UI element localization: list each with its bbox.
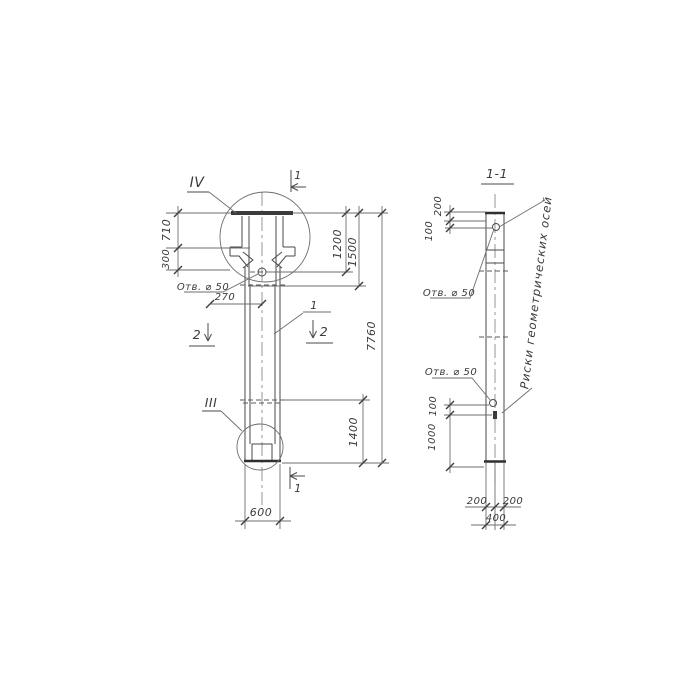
section-mark-2-right-arrow bbox=[310, 320, 317, 338]
position-number: 1 bbox=[310, 299, 318, 312]
section-mark-1-bottom: 1 bbox=[290, 467, 305, 495]
dim-1200: 1200 bbox=[331, 229, 344, 259]
dim-300: 300 bbox=[161, 249, 172, 270]
detail-circle-bottom bbox=[237, 424, 283, 470]
section-mark-1-bottom-text: 1 bbox=[294, 482, 302, 495]
dim-1000: 1000 bbox=[427, 423, 438, 450]
corbel-left-chevron bbox=[243, 252, 253, 268]
section-hole-label-top: Отв. ⌀ 50 bbox=[423, 288, 475, 299]
top-plate bbox=[231, 211, 293, 215]
hole-callout: Отв. ⌀ 50 270 bbox=[177, 274, 266, 308]
left-ext-lines bbox=[166, 248, 250, 270]
axes-note: Риски геометрических осей bbox=[499, 195, 555, 413]
section-hole-leader-bottom bbox=[432, 378, 491, 401]
section-mark-1-top-text: 1 bbox=[294, 169, 302, 182]
detail-label-bottom-text: III bbox=[205, 395, 218, 410]
section-mark-2-left: 2 bbox=[189, 323, 215, 346]
column-shaft-outline bbox=[245, 267, 280, 461]
corbel-right-chevron bbox=[272, 252, 282, 268]
section-mark-2-left-text: 2 bbox=[193, 327, 201, 342]
section-mark-1-top: 1 bbox=[291, 169, 306, 192]
axes-note-leader-bottom bbox=[502, 388, 532, 413]
detail-label-top-text: IV bbox=[190, 175, 206, 191]
detail-circle-top bbox=[220, 192, 310, 282]
section-title-text: 1-1 bbox=[486, 166, 508, 181]
section-top-dimensions: 200 100 bbox=[424, 196, 492, 242]
dim-1500: 1500 bbox=[346, 237, 359, 267]
drawing-canvas: IV III 1 1 2 2 bbox=[0, 0, 700, 700]
detail-label-top-leader bbox=[209, 192, 236, 213]
section-mark-2-right: 2 bbox=[306, 320, 333, 343]
shaft-seam-lower bbox=[240, 400, 285, 403]
main-view: IV III 1 1 2 2 bbox=[160, 169, 389, 529]
axes-note-text: Риски геометрических осей bbox=[517, 195, 555, 389]
bottom-dimension: 600 bbox=[235, 464, 291, 529]
dim-200-left: 200 bbox=[467, 496, 488, 507]
axis-mark bbox=[493, 411, 497, 419]
section-bottomleft-dimensions: 100 1000 bbox=[427, 396, 492, 473]
dim-7760: 7760 bbox=[365, 321, 378, 351]
left-dimensions: 710 300 bbox=[160, 206, 250, 277]
dim-200-top: 200 bbox=[433, 196, 444, 217]
dim-400: 400 bbox=[486, 513, 507, 524]
detail-label-top: IV bbox=[187, 175, 236, 213]
section-mark-2-right-text: 2 bbox=[320, 324, 328, 339]
section-view: 1-1 200 100 100 1000 bbox=[423, 166, 555, 530]
drawing-sheet: IV III 1 1 2 2 bbox=[0, 0, 700, 700]
section-width-dimensions: 200 200 400 bbox=[465, 463, 523, 530]
detail-label-bottom-leader bbox=[221, 411, 242, 431]
dim-100-top: 100 bbox=[424, 221, 435, 242]
dim-100-bottom: 100 bbox=[428, 396, 439, 417]
dim-600: 600 bbox=[250, 506, 273, 519]
section-hole-label-bottom: Отв. ⌀ 50 bbox=[425, 367, 477, 378]
dim-1400: 1400 bbox=[347, 417, 360, 447]
section-mark-2-left-arrow bbox=[205, 323, 212, 341]
ext-600 bbox=[245, 464, 280, 529]
corbel-right bbox=[277, 247, 295, 267]
section-title: 1-1 bbox=[481, 166, 514, 184]
dim-200-right: 200 bbox=[503, 496, 524, 507]
dim-270: 270 bbox=[215, 292, 236, 303]
detail-label-bottom: III bbox=[202, 395, 242, 431]
corbel-left bbox=[230, 247, 248, 267]
column-head-outline bbox=[242, 216, 283, 284]
dim-710: 710 bbox=[160, 219, 173, 242]
right-dimensions: 1200 1500 7760 1400 bbox=[248, 206, 389, 467]
